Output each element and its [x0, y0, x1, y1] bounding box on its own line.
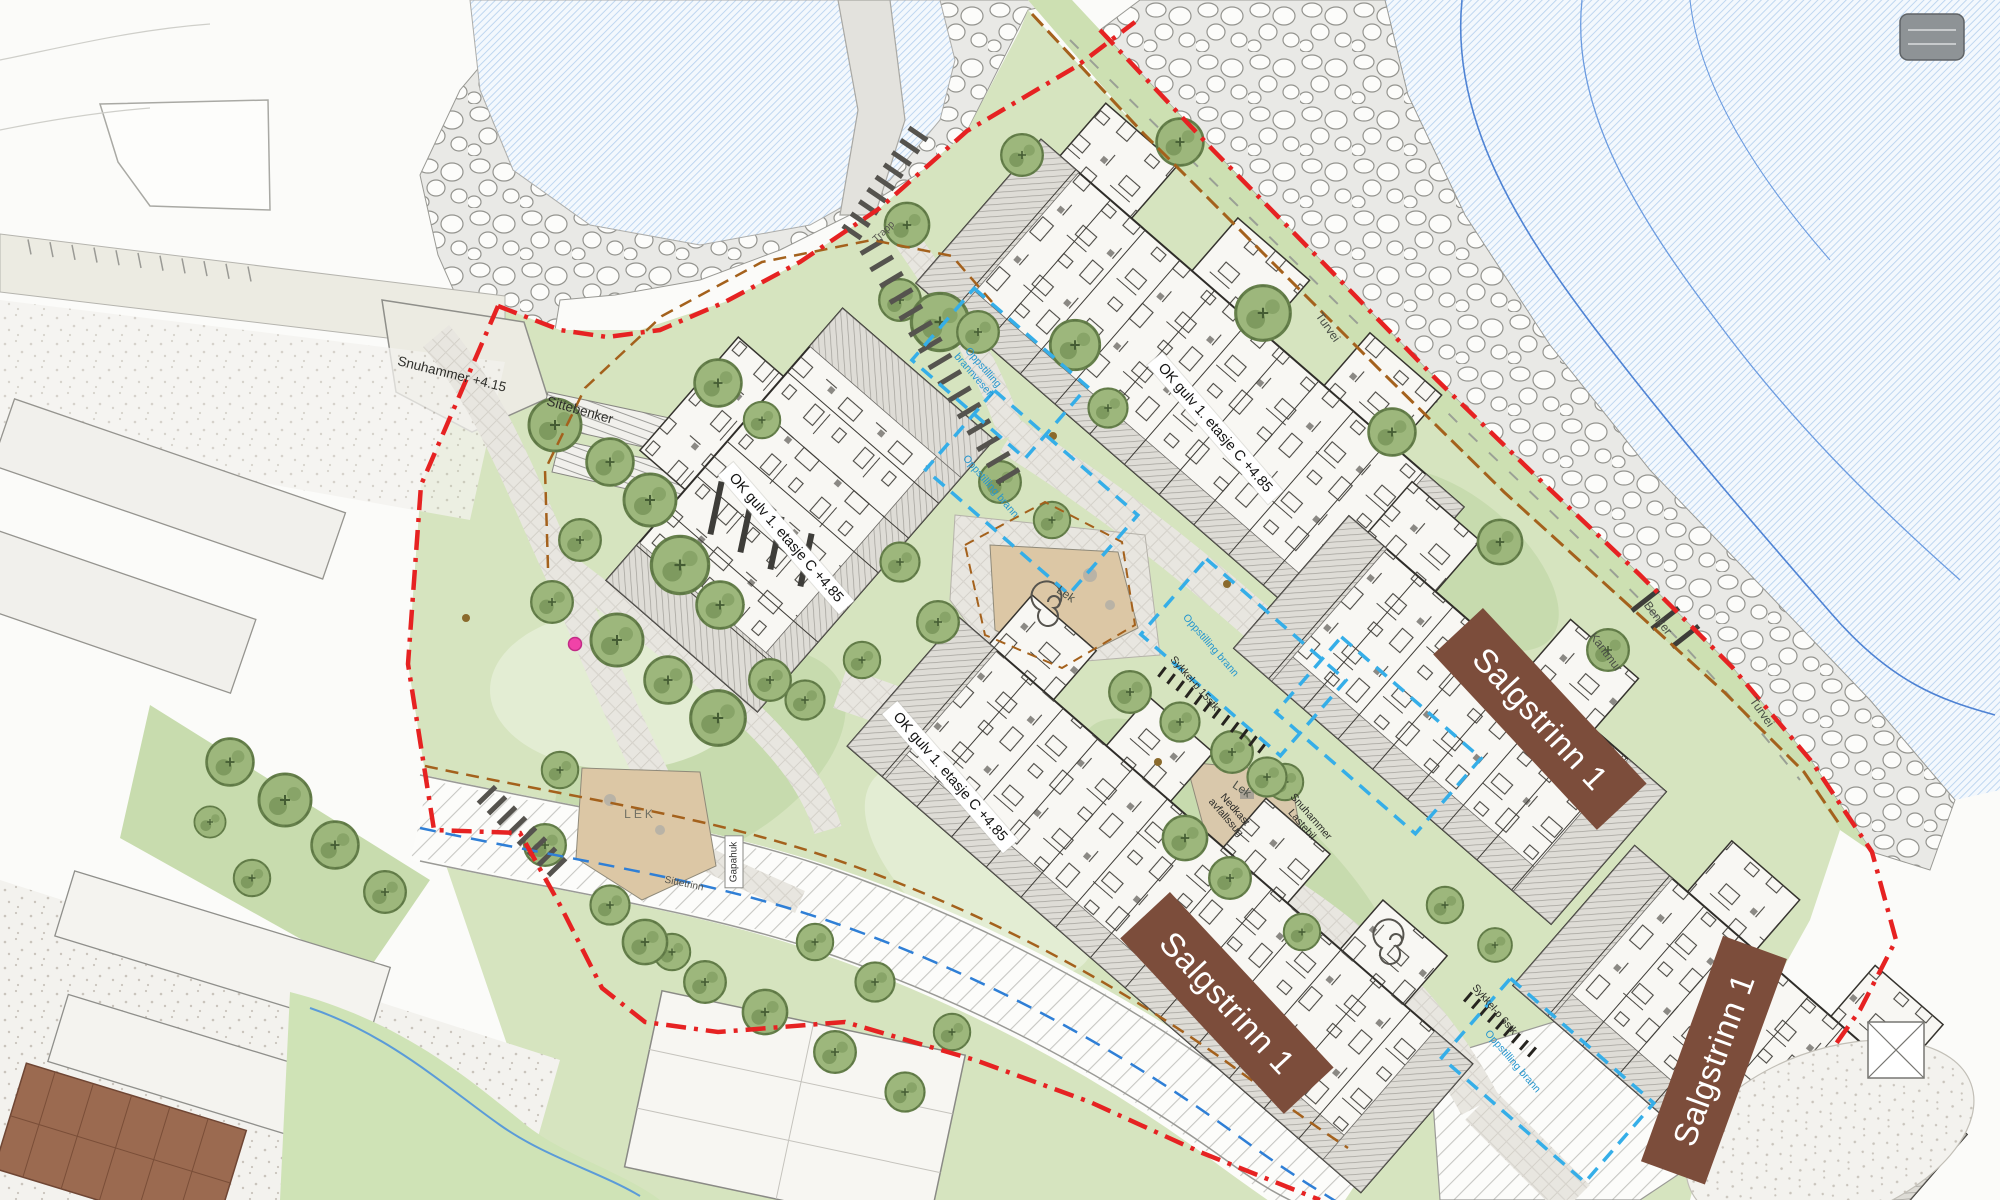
- tree-icon: [1050, 320, 1099, 369]
- tree-icon: [886, 1073, 925, 1112]
- tree-icon: [531, 581, 573, 623]
- tree-icon: [957, 311, 999, 353]
- tree-icon: [1478, 928, 1512, 962]
- tree-icon: [1034, 502, 1070, 538]
- tree-icon: [1369, 409, 1416, 456]
- tree-icon: [697, 582, 744, 629]
- tree-icon: [1427, 887, 1463, 923]
- tree-icon: [207, 739, 254, 786]
- pier-structure: [1900, 14, 1964, 60]
- tree-icon: [1478, 520, 1522, 564]
- tree-icon: [749, 659, 791, 701]
- tree-icon: [1089, 389, 1128, 428]
- tree-icon: [364, 871, 406, 913]
- tree-icon: [234, 860, 270, 896]
- tree-icon: [1236, 286, 1291, 341]
- tree-icon: [559, 519, 601, 561]
- tree-icon: [259, 774, 311, 826]
- tree-icon: [1001, 134, 1043, 176]
- tree-icon: [797, 924, 833, 960]
- tree-icon: [645, 657, 692, 704]
- tree-icon: [1209, 857, 1251, 899]
- pink-marker: [569, 638, 582, 651]
- tree-icon: [623, 920, 667, 964]
- tree-icon: [1163, 816, 1207, 860]
- tree-icon: [591, 614, 643, 666]
- tree-icon: [744, 402, 780, 438]
- tree-icon: [1284, 914, 1320, 950]
- tree-icon: [695, 360, 742, 407]
- tree-icon: [786, 681, 825, 720]
- tree-icon: [194, 806, 225, 837]
- tree-icon: [881, 543, 920, 582]
- tree-icon: [934, 1014, 970, 1050]
- tree-icon: [684, 961, 726, 1003]
- tree-icon: [814, 1031, 856, 1073]
- tree-icon: [1161, 703, 1200, 742]
- site-plan-canvas: [0, 0, 2000, 1200]
- tree-icon: [624, 474, 676, 526]
- tree-icon: [312, 822, 359, 869]
- tree-icon: [542, 752, 578, 788]
- tree-icon: [1211, 731, 1253, 773]
- tree-icon: [856, 963, 895, 1002]
- tree-icon: [1587, 629, 1629, 671]
- site-plan-page: Snuhammer +4.15SittebenkerTrappOK gulv 1…: [0, 0, 2000, 1200]
- tree-icon: [651, 536, 708, 593]
- tree-icon: [1248, 758, 1287, 797]
- tree-icon: [529, 399, 581, 451]
- tree-icon: [587, 439, 634, 486]
- tree-icon: [844, 642, 880, 678]
- tree-icon: [1109, 671, 1151, 713]
- tree-icon: [1157, 119, 1204, 166]
- tree-icon: [691, 691, 746, 746]
- tree-icon: [917, 601, 959, 643]
- tree-icon: [591, 886, 630, 925]
- tree-icon: [885, 203, 929, 247]
